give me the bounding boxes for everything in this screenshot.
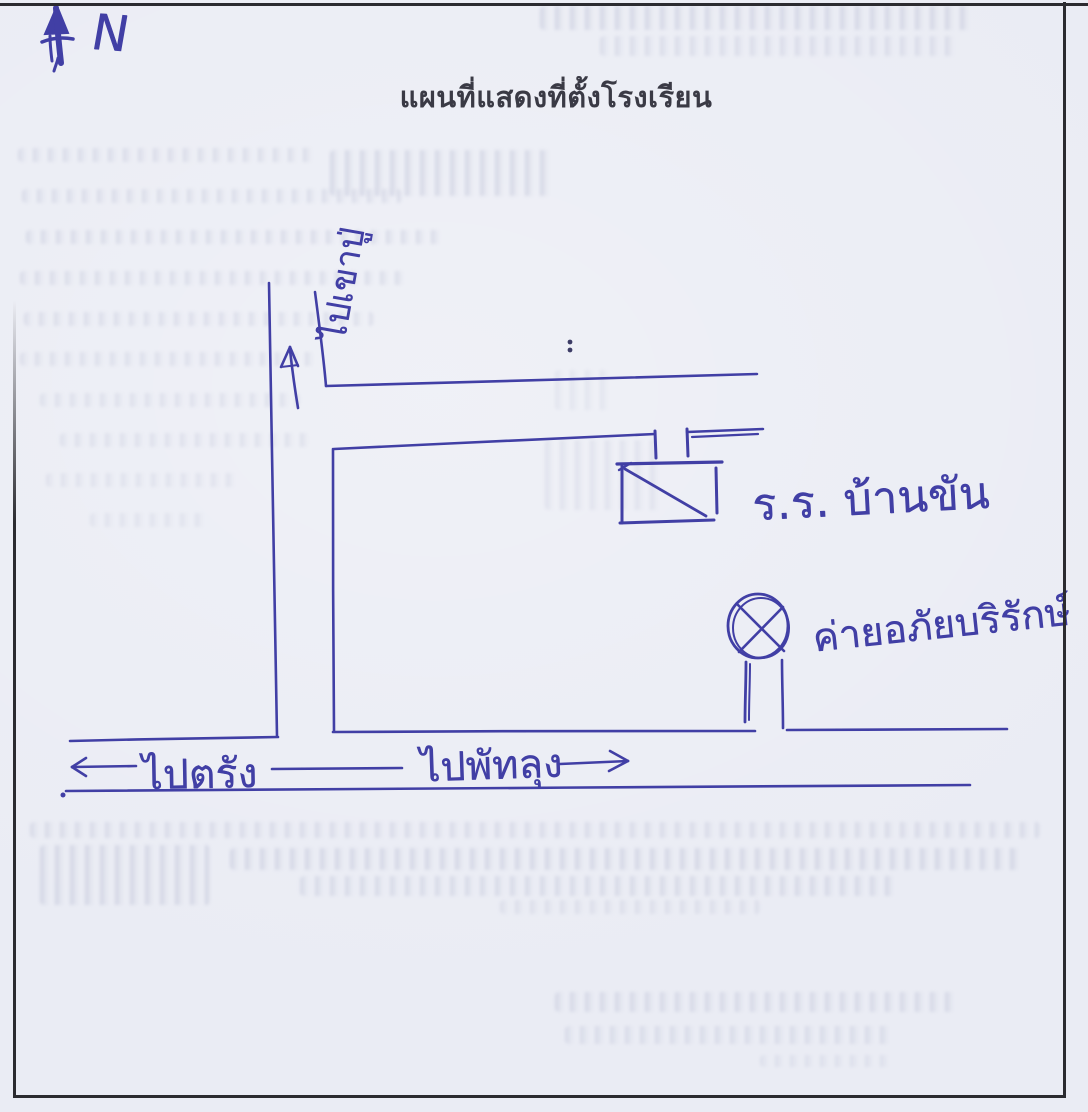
road-east-to-school — [326, 374, 763, 458]
north-arrow-icon — [42, 6, 73, 71]
scanned-map-page: แผนที่แสดงที่ตั้งโรงเรียน N ไปเขาปู่ ไปต… — [0, 0, 1088, 1112]
road-label-to-trang: ไปตรัง — [141, 741, 257, 808]
school-label: ร.ร. บ้านขัน — [750, 456, 991, 540]
school-building-symbol — [617, 462, 722, 523]
ink-specks — [568, 340, 573, 353]
scan-border-right — [1063, 2, 1066, 1096]
road-label-to-phatthalung: ไปพัทลุง — [419, 731, 563, 800]
scan-border-bottom — [13, 1095, 1066, 1098]
scan-border-top — [0, 3, 1088, 6]
map-title: แผนที่แสดงที่ตั้งโรงเรียน — [400, 74, 713, 120]
road-north — [269, 283, 334, 736]
map-ink-drawing — [0, 0, 1088, 1112]
scan-border-left — [13, 300, 16, 1097]
camp-symbol — [728, 594, 789, 728]
